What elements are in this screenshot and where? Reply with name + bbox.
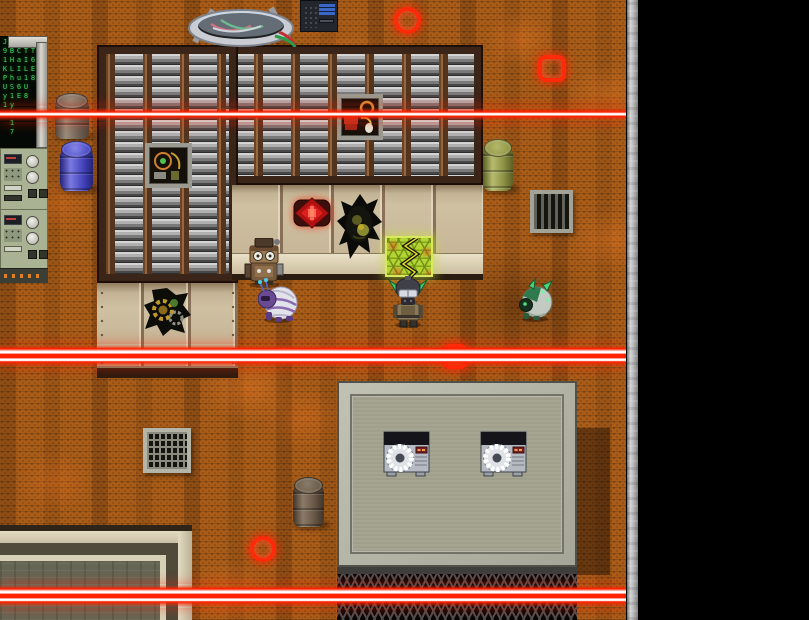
roof-frame-outer bbox=[178, 531, 192, 620]
panel-readout bbox=[4, 154, 22, 164]
roof-hatch-machinery-a[interactable] bbox=[145, 143, 192, 188]
blasted-wall-hole[interactable] bbox=[337, 192, 383, 267]
green-mech-character[interactable] bbox=[515, 278, 555, 326]
roof-hatch-machinery-b[interactable] bbox=[337, 94, 383, 140]
roof-frame-gap bbox=[166, 543, 178, 620]
hex-circuit-panel[interactable] bbox=[385, 236, 433, 277]
barrel-lid bbox=[484, 139, 512, 157]
roof-interior bbox=[0, 561, 160, 620]
rivet-column bbox=[230, 287, 236, 364]
terminal-column: J91KPUy1 bbox=[1, 38, 8, 110]
control-panel-unit[interactable] bbox=[0, 148, 48, 210]
panel-button-wide[interactable] bbox=[4, 185, 22, 191]
panel-led-strip bbox=[0, 268, 48, 283]
panel-readout bbox=[4, 215, 22, 225]
panel-switch[interactable] bbox=[28, 189, 37, 198]
barrel-lid bbox=[56, 93, 87, 109]
barrel-lid bbox=[61, 141, 91, 158]
laser-emitter-circle-bottom[interactable] bbox=[250, 536, 276, 562]
panel-button-wide[interactable] bbox=[4, 246, 22, 252]
barrel-blue[interactable] bbox=[60, 141, 93, 191]
matrix-terminal[interactable]: J91KPUy1 HBHLhS1yI17 1CaIu6E 9TIL1U8 1T6… bbox=[0, 36, 48, 148]
red-gem-wall-light[interactable] bbox=[293, 196, 331, 234]
terminal-column: HBHLhS1yI17 bbox=[8, 38, 15, 137]
concrete-platform bbox=[337, 381, 577, 567]
console-buttons[interactable] bbox=[304, 6, 318, 28]
surveillance-dish-machine[interactable] bbox=[183, 0, 302, 47]
panel-keypad[interactable] bbox=[4, 229, 22, 242]
gauge-dial bbox=[26, 171, 39, 184]
roof-frame-outer bbox=[0, 531, 192, 543]
ac-unit-right[interactable] bbox=[480, 426, 527, 478]
wall-base-shadow bbox=[97, 366, 238, 378]
gauge-dial bbox=[26, 155, 39, 168]
game-screenshot: J91KPUy1 HBHLhS1yI17 1CaIu6E 9TIL1U8 1T6… bbox=[0, 0, 809, 620]
gauge-dial bbox=[26, 216, 39, 229]
roof-frame-inner bbox=[160, 555, 166, 620]
control-panel-unit[interactable] bbox=[0, 209, 48, 271]
panel-switch[interactable] bbox=[39, 250, 48, 259]
barrel-brown[interactable] bbox=[55, 93, 89, 139]
barrel-green[interactable] bbox=[483, 139, 513, 191]
terminal-frame-right bbox=[36, 42, 48, 148]
panel-switch[interactable] bbox=[39, 189, 48, 198]
panel-switch[interactable] bbox=[28, 250, 37, 259]
laser-emitter-square-top[interactable] bbox=[538, 55, 566, 82]
panel-button-dark[interactable] bbox=[4, 195, 22, 201]
terminal-screen: J91KPUy1 HBHLhS1yI17 1CaIu6E 9TIL1U8 1T6… bbox=[0, 36, 38, 148]
floor-grate-lattice[interactable] bbox=[143, 428, 191, 473]
purple-beetle-character[interactable] bbox=[258, 277, 298, 327]
roof-frame-gap bbox=[0, 543, 178, 555]
laser-emitter-square-mid[interactable] bbox=[442, 344, 468, 369]
panel-keypad[interactable] bbox=[4, 168, 22, 181]
platform-shadow bbox=[577, 428, 610, 575]
floor-grate-vent[interactable] bbox=[530, 190, 573, 233]
security-laser-middle bbox=[0, 344, 626, 368]
wall-hole-gears[interactable] bbox=[143, 287, 192, 341]
game-viewport[interactable]: J91KPUy1 HBHLhS1yI17 1CaIu6E 9TIL1U8 1T6… bbox=[0, 0, 626, 620]
console-slot bbox=[319, 19, 334, 23]
rivet-column bbox=[99, 287, 105, 364]
lower-building-roof bbox=[0, 525, 192, 620]
window-edge-strip bbox=[627, 0, 638, 620]
control-console[interactable] bbox=[300, 0, 338, 32]
ac-unit-left[interactable] bbox=[383, 426, 430, 478]
tread-lattice bbox=[337, 567, 577, 620]
gauge-dial bbox=[26, 232, 39, 245]
soldier-character[interactable] bbox=[388, 275, 428, 332]
barrel-lid bbox=[294, 477, 323, 494]
laser-emitter-circle-top[interactable] bbox=[394, 7, 421, 34]
barrel-brown-small[interactable] bbox=[293, 477, 324, 527]
console-screen bbox=[319, 3, 335, 15]
control-panel-bank[interactable] bbox=[0, 148, 48, 283]
